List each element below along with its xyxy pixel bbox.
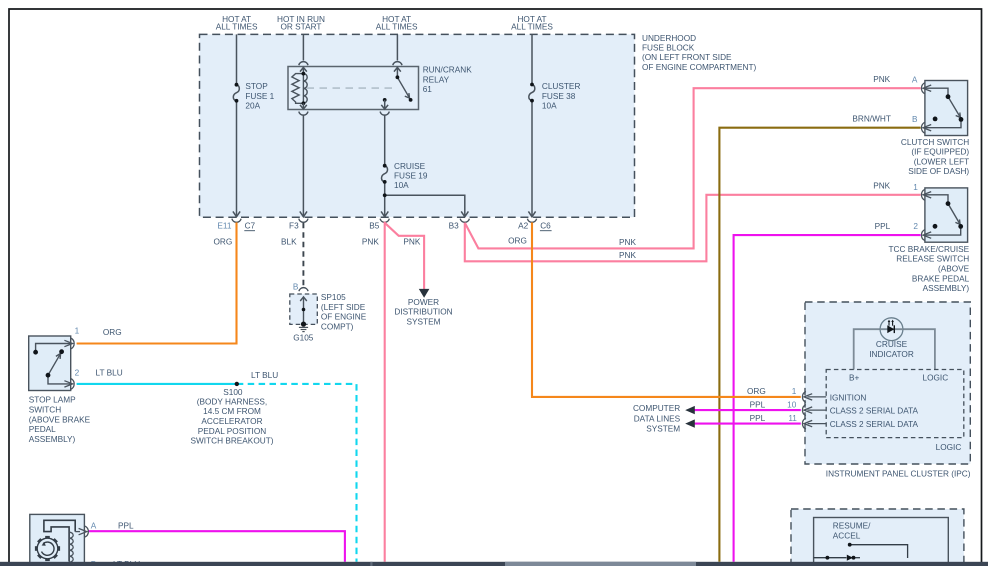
svg-text:B: B <box>912 115 918 124</box>
svg-text:PEDAL POSITION: PEDAL POSITION <box>198 427 267 436</box>
svg-text:IGNITION: IGNITION <box>830 393 867 402</box>
svg-text:LT BLU: LT BLU <box>96 368 123 377</box>
svg-text:ORG: ORG <box>214 237 233 246</box>
svg-text:SIDE OF DASH): SIDE OF DASH) <box>908 167 969 176</box>
svg-text:CRUISE: CRUISE <box>394 162 426 171</box>
svg-text:PPL: PPL <box>750 414 766 423</box>
svg-text:PNK: PNK <box>619 251 636 260</box>
svg-text:ALL TIMES: ALL TIMES <box>511 23 553 32</box>
svg-text:14.5 CM FROM: 14.5 CM FROM <box>203 407 261 416</box>
svg-text:RELAY: RELAY <box>423 75 450 84</box>
svg-text:RUN/CRANK: RUN/CRANK <box>423 66 473 75</box>
svg-text:SP105: SP105 <box>321 293 346 302</box>
svg-text:BLK: BLK <box>281 237 297 246</box>
svg-text:B: B <box>293 283 299 292</box>
svg-text:61: 61 <box>423 85 433 94</box>
svg-text:TCC BRAKE/CRUISE: TCC BRAKE/CRUISE <box>889 245 970 254</box>
svg-text:POWER: POWER <box>408 298 439 307</box>
svg-text:INDICATOR: INDICATOR <box>869 350 914 359</box>
svg-text:COMPUTER: COMPUTER <box>633 404 680 413</box>
svg-text:DATA LINES: DATA LINES <box>634 414 681 423</box>
svg-text:CRUISE: CRUISE <box>876 340 908 349</box>
svg-text:OF ENGINE: OF ENGINE <box>321 313 367 322</box>
svg-text:1: 1 <box>913 183 918 192</box>
svg-text:DISTRIBUTION: DISTRIBUTION <box>394 308 452 317</box>
svg-text:ORG: ORG <box>508 236 527 245</box>
svg-text:A2: A2 <box>518 222 529 231</box>
svg-text:SYSTEM: SYSTEM <box>407 317 441 326</box>
svg-text:FUSE 1: FUSE 1 <box>245 92 274 101</box>
svg-text:2: 2 <box>75 368 80 377</box>
svg-text:PNK: PNK <box>873 75 890 84</box>
svg-text:(ON LEFT FRONT SIDE: (ON LEFT FRONT SIDE <box>642 53 732 62</box>
svg-text:ORG: ORG <box>103 328 122 337</box>
svg-text:OF ENGINE COMPARTMENT): OF ENGINE COMPARTMENT) <box>642 63 757 72</box>
svg-text:(ABOVE BRAKE: (ABOVE BRAKE <box>29 415 91 424</box>
svg-text:ORG: ORG <box>747 387 766 396</box>
svg-text:PNK: PNK <box>403 238 420 247</box>
svg-text:B5: B5 <box>369 222 380 231</box>
svg-text:PNK: PNK <box>362 237 379 246</box>
svg-text:C6: C6 <box>540 222 551 231</box>
svg-text:S100: S100 <box>223 388 243 397</box>
svg-text:STOP: STOP <box>245 82 268 91</box>
svg-text:(IF EQUIPPED): (IF EQUIPPED) <box>911 148 969 157</box>
svg-text:(LEFT SIDE: (LEFT SIDE <box>321 303 366 312</box>
svg-text:10A: 10A <box>542 101 557 110</box>
svg-text:CLUSTER: CLUSTER <box>542 82 581 91</box>
svg-text:RESUME/: RESUME/ <box>833 522 871 531</box>
svg-text:FUSE 38: FUSE 38 <box>542 92 576 101</box>
svg-text:ACCEL: ACCEL <box>833 531 861 540</box>
svg-text:FUSE BLOCK: FUSE BLOCK <box>642 44 695 53</box>
svg-text:20A: 20A <box>245 101 260 110</box>
svg-text:1: 1 <box>75 327 80 336</box>
svg-text:E11: E11 <box>217 222 231 231</box>
svg-text:1: 1 <box>792 387 797 396</box>
svg-text:SWITCH: SWITCH <box>29 406 62 415</box>
svg-text:PNK: PNK <box>619 238 636 247</box>
svg-text:A: A <box>91 521 97 530</box>
svg-text:C7: C7 <box>245 222 256 231</box>
svg-text:10A: 10A <box>394 181 409 190</box>
svg-text:G105: G105 <box>293 334 314 343</box>
svg-text:CLUTCH SWITCH: CLUTCH SWITCH <box>901 138 969 147</box>
svg-text:BRN/WHT: BRN/WHT <box>852 115 891 124</box>
svg-text:PPL: PPL <box>750 400 766 409</box>
svg-text:ALL TIMES: ALL TIMES <box>376 23 418 32</box>
svg-text:LOGIC: LOGIC <box>923 374 949 383</box>
svg-text:(BODY HARNESS,: (BODY HARNESS, <box>197 397 267 406</box>
svg-text:SYSTEM: SYSTEM <box>646 425 680 434</box>
svg-text:FUSE 19: FUSE 19 <box>394 171 428 180</box>
svg-text:PPL: PPL <box>875 222 891 231</box>
svg-text:STOP LAMP: STOP LAMP <box>29 396 76 405</box>
svg-text:11: 11 <box>788 414 797 423</box>
svg-text:RELEASE SWITCH: RELEASE SWITCH <box>896 255 969 264</box>
svg-text:LOGIC: LOGIC <box>936 443 962 452</box>
svg-text:PEDAL: PEDAL <box>29 425 56 434</box>
svg-text:BRAKE PEDAL: BRAKE PEDAL <box>912 274 970 283</box>
svg-text:ASSEMBLY): ASSEMBLY) <box>29 435 76 444</box>
svg-text:OR START: OR START <box>281 23 322 32</box>
svg-text:(ABOVE: (ABOVE <box>938 265 970 274</box>
svg-text:A: A <box>912 75 918 84</box>
svg-text:ACCELERATOR: ACCELERATOR <box>201 417 262 426</box>
svg-text:(LOWER LEFT: (LOWER LEFT <box>914 157 969 166</box>
svg-text:CLASS 2 SERIAL DATA: CLASS 2 SERIAL DATA <box>830 407 919 416</box>
svg-text:2: 2 <box>913 222 918 231</box>
svg-text:UNDERHOOD: UNDERHOOD <box>642 34 696 43</box>
svg-text:PPL: PPL <box>118 522 134 531</box>
svg-text:ALL TIMES: ALL TIMES <box>216 23 258 32</box>
svg-text:SWITCH BREAKOUT): SWITCH BREAKOUT) <box>191 437 274 446</box>
svg-text:LT BLU: LT BLU <box>251 371 278 380</box>
svg-text:CLASS 2 SERIAL DATA: CLASS 2 SERIAL DATA <box>830 420 919 429</box>
svg-text:PNK: PNK <box>873 182 890 191</box>
svg-text:F3: F3 <box>289 222 299 231</box>
svg-text:10: 10 <box>787 400 797 409</box>
svg-text:COMPT): COMPT) <box>321 323 354 332</box>
svg-text:INSTRUMENT PANEL CLUSTER (IPC): INSTRUMENT PANEL CLUSTER (IPC) <box>826 469 971 478</box>
svg-text:B+: B+ <box>849 374 860 383</box>
svg-text:B3: B3 <box>449 222 460 231</box>
svg-text:ASSEMBLY): ASSEMBLY) <box>923 284 970 293</box>
